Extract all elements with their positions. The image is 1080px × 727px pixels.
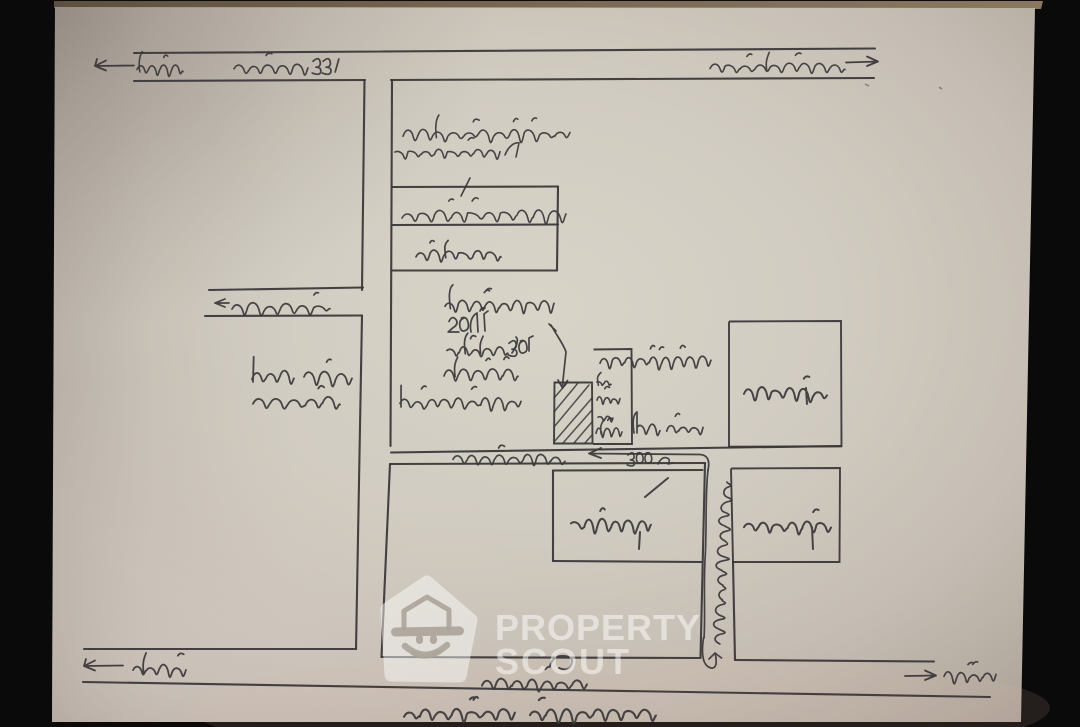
svg-text:SCOUT: SCOUT — [495, 641, 631, 682]
